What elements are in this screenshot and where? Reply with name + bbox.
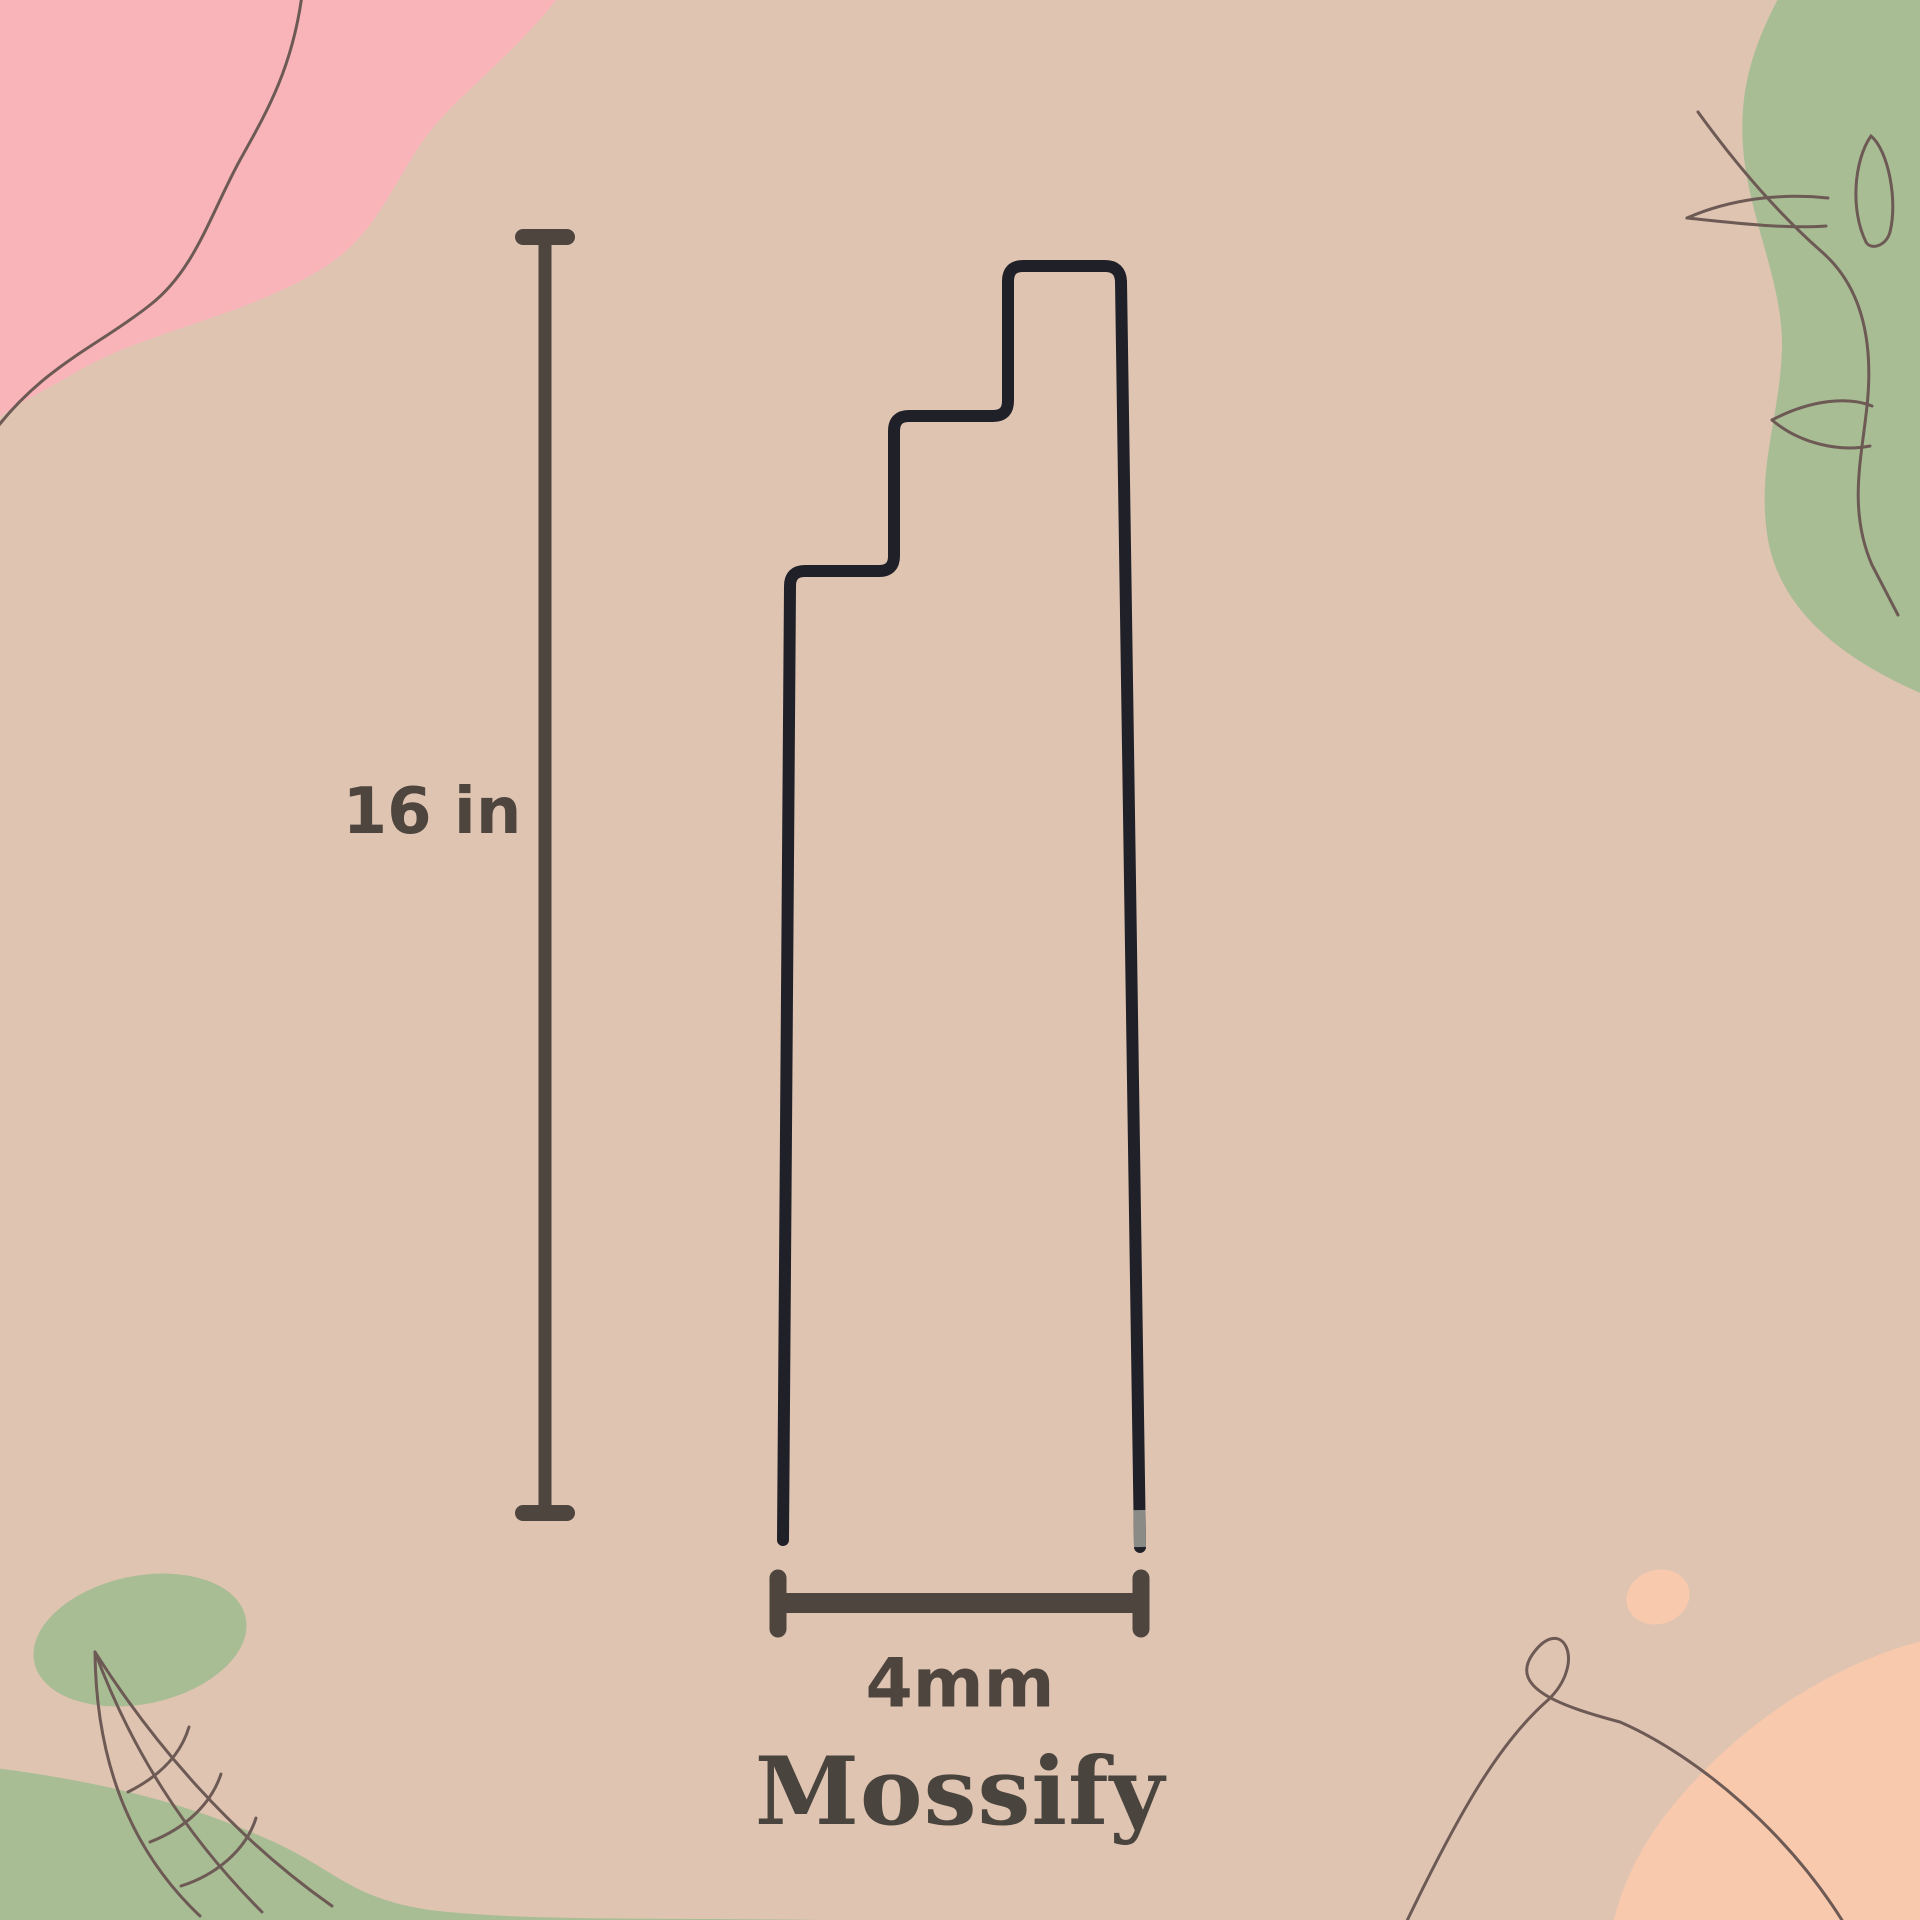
width-dimension xyxy=(778,1578,1141,1629)
wire-stake-right-tip xyxy=(1140,1510,1141,1547)
peach-blob-bottom-right xyxy=(1612,1640,1920,1920)
wire-stake-outline xyxy=(783,266,1140,1547)
peach-dot-bottom-right xyxy=(1619,1561,1697,1632)
green-blob-top-right xyxy=(1742,0,1920,695)
height-dimension-label: 16 in xyxy=(343,775,522,849)
width-dimension-label: 4mm xyxy=(865,1645,1054,1724)
height-dimension xyxy=(523,237,567,1513)
product-dimension-diagram: 16 in 4mm Mossify xyxy=(0,0,1920,1920)
diagram-graphics xyxy=(0,0,1920,1920)
brand-wordmark: Mossify xyxy=(755,1737,1165,1847)
pink-blob-top-left xyxy=(0,0,560,420)
green-dot-bottom-left xyxy=(21,1555,259,1725)
wire-stake xyxy=(783,266,1140,1547)
